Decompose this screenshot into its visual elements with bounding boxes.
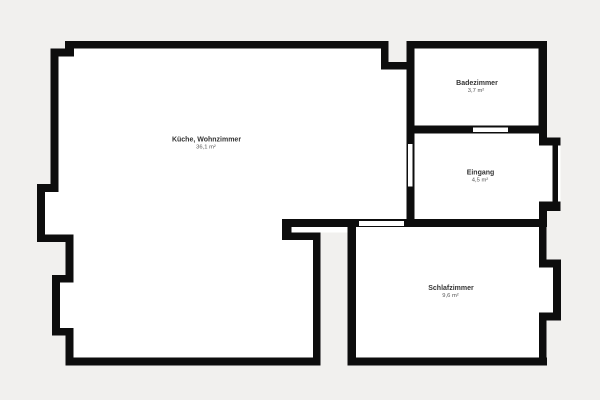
- svg-text:4,5 m²: 4,5 m²: [472, 177, 488, 183]
- svg-text:Schlafzimmer: Schlafzimmer: [428, 285, 474, 292]
- svg-text:Küche, Wohnzimmer: Küche, Wohnzimmer: [172, 136, 241, 143]
- svg-text:36,1 m²: 36,1 m²: [196, 144, 216, 150]
- svg-text:3,7 m²: 3,7 m²: [468, 88, 484, 94]
- svg-text:9,6 m²: 9,6 m²: [442, 293, 458, 299]
- svg-text:Badezimmer: Badezimmer: [456, 80, 498, 87]
- svg-text:Eingang: Eingang: [467, 170, 495, 177]
